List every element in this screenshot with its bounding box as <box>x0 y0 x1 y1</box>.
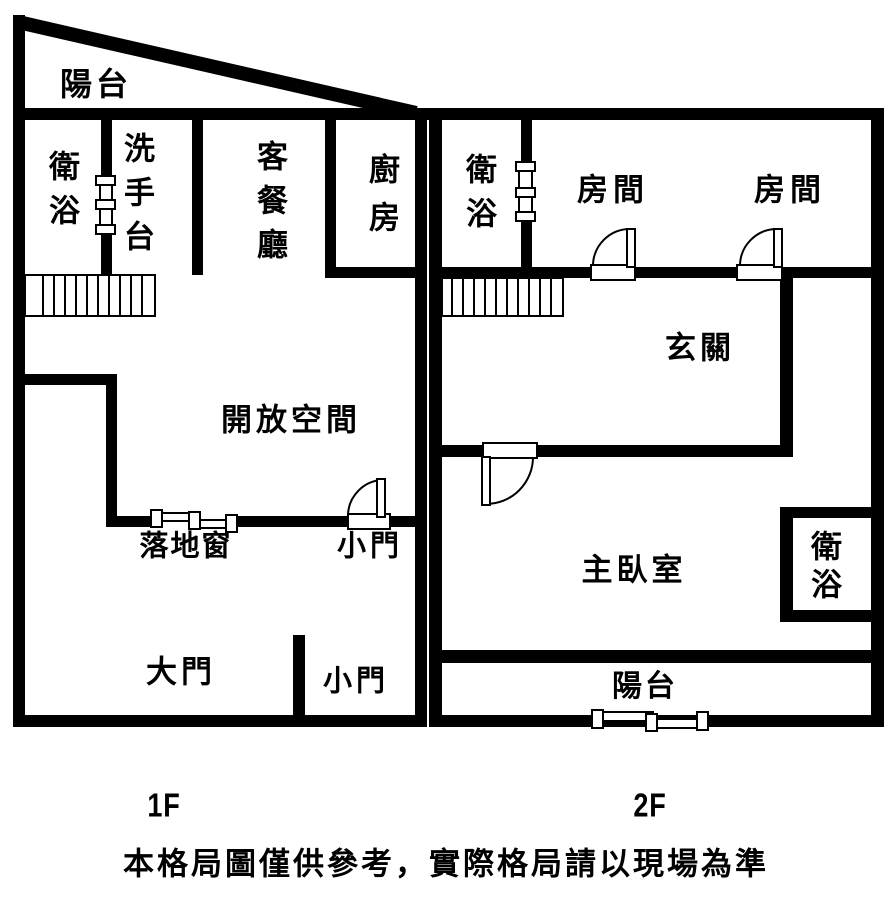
label-1f-open-space: 開放空間 <box>221 405 361 436</box>
wall-2f-bath2-bottom <box>793 610 871 622</box>
wall-2f-hall-right <box>780 278 793 457</box>
wall-2f-rooms-bottom-b <box>634 267 738 278</box>
label-1f-floor-window: 落地窗 <box>139 533 232 562</box>
floor-label-2f: 2F <box>633 789 666 822</box>
wall-2f-hall-bottom-a <box>442 445 483 457</box>
label-1f-washbasin: 洗手台 <box>121 132 152 264</box>
wall-2f-bath2-left <box>780 507 793 622</box>
disclaimer-text: 本格局圖僅供參考，實際格局請以現場為準 <box>123 849 769 880</box>
wall-1f-openspace-bottom-a <box>106 516 153 527</box>
wall-2f-rooms-bottom-a <box>429 267 591 278</box>
wall-1f-right <box>415 108 427 727</box>
wall-1f-entry-divider <box>293 635 305 727</box>
wall-2f-bath2-top <box>793 507 871 518</box>
door-arc-room-left <box>593 229 630 266</box>
label-1f-bathroom: 衛浴 <box>46 150 77 238</box>
wall-2f-rooms-bottom-c <box>781 267 884 278</box>
floor1-walls <box>13 15 884 727</box>
window-1f-basin-icon <box>96 176 115 234</box>
label-2f-room-right: 房間 <box>754 175 826 206</box>
wall-1f-kitchen-bottom <box>325 267 427 278</box>
door-panel-room-left <box>627 229 635 267</box>
label-2f-balcony: 陽台 <box>612 672 678 702</box>
wall-2f-balcony-top <box>429 650 884 663</box>
label-2f-room-left: 房間 <box>577 175 649 206</box>
wall-2f-right <box>871 108 884 727</box>
label-2f-bathroom-lower: 衛浴 <box>808 530 839 606</box>
stairs-2f-icon <box>442 278 563 316</box>
floorplan-canvas: 陽台 衛浴 洗手台 客餐廳 廚房 開放空間 落地窗 小門 大門 小門 衛浴 房間… <box>0 0 889 898</box>
wall-top-shared <box>13 108 884 120</box>
window-2f-balcony-icon <box>592 710 708 731</box>
door-panel-small-door-1f <box>377 479 385 517</box>
wall-1f-L-vertical <box>106 374 117 527</box>
window-1f-floor-window-icon <box>151 510 237 532</box>
wall-1f-openspace-bottom-b <box>235 516 348 527</box>
wall-2f-hall-bottom-b <box>537 445 793 457</box>
wall-1f-living-kitchen <box>325 120 336 278</box>
wall-1f-left <box>13 15 25 727</box>
label-1f-balcony: 陽台 <box>60 68 132 100</box>
wall-1f-L-horizontal <box>13 374 117 385</box>
door-thresholds <box>348 265 782 529</box>
wall-2f-left <box>429 108 442 727</box>
wall-1f-bottom <box>13 715 427 727</box>
label-1f-main-door: 大門 <box>146 657 216 688</box>
label-2f-entry-hall: 玄關 <box>665 333 735 364</box>
label-1f-kitchen: 廚房 <box>366 153 397 249</box>
door-arc-master <box>486 457 533 504</box>
wall-1f-basin-living <box>192 120 203 275</box>
door-panel-room-right <box>774 229 782 267</box>
stairs-1f-icon <box>25 275 155 316</box>
floor-label-1f: 1F <box>147 789 180 822</box>
label-1f-small-door-lower: 小門 <box>323 668 389 697</box>
window-2f-bath-icon <box>516 162 535 221</box>
threshold-master-door <box>483 443 537 458</box>
label-2f-bathroom-upper: 衛浴 <box>463 153 494 241</box>
door-panel-master <box>482 457 490 505</box>
door-arc-room-right <box>740 229 777 266</box>
label-2f-master-bedroom: 主臥室 <box>582 555 687 586</box>
label-1f-small-door-upper: 小門 <box>337 533 403 562</box>
label-1f-living-dining: 客餐廳 <box>254 140 285 272</box>
